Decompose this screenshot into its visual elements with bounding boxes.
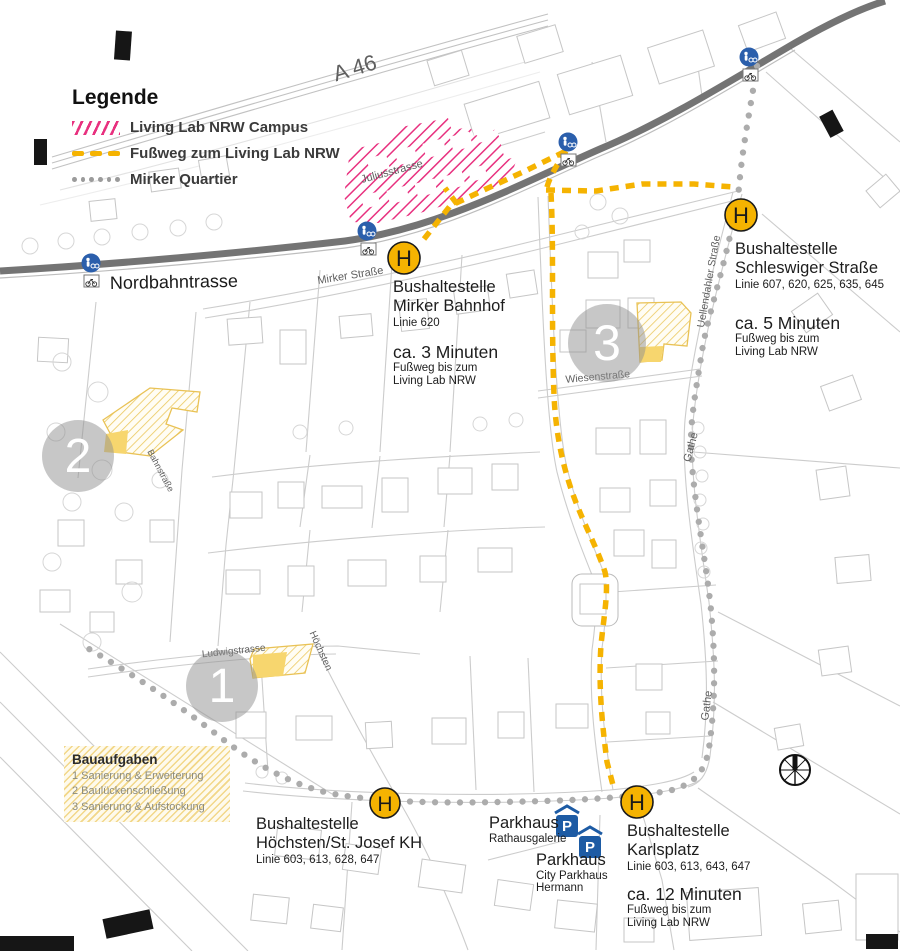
parking-name: Parkhaus bbox=[489, 814, 566, 833]
stop-label-schleswiger: Bushaltestelle Schleswiger Straße Linie … bbox=[735, 240, 900, 360]
legend-item-quartier: Mirker Quartier bbox=[72, 171, 340, 188]
parking-label-city-parkhaus: Parkhaus City Parkhaus Hermann bbox=[536, 851, 608, 894]
parking-label-rathausgalerie: Parkhaus Rathausgalerie bbox=[489, 814, 566, 845]
h-icon: H bbox=[629, 790, 645, 815]
site-3-number: 3 bbox=[593, 315, 621, 371]
stop-lines: Linie 607, 620, 625, 635, 645 bbox=[735, 279, 900, 292]
walk-sub: Living Lab NRW bbox=[393, 375, 563, 388]
legend-item-fussweg: Fußweg zum Living Lab NRW bbox=[72, 145, 340, 162]
stop-name: Karlsplatz bbox=[627, 841, 787, 860]
site-1-number: 1 bbox=[209, 660, 236, 713]
walk-time: ca. 12 Minuten bbox=[627, 884, 787, 904]
legend: Legende Living Lab NRW Campus Fußweg zum… bbox=[72, 86, 340, 197]
bauaufgaben-title: Bauaufgaben bbox=[72, 752, 222, 767]
stop-label-hoechsten: Bushaltestelle Höchsten/St. Josef KH Lin… bbox=[256, 815, 486, 868]
site-2-number: 2 bbox=[65, 430, 92, 483]
legend-item-label: Living Lab NRW Campus bbox=[130, 119, 308, 136]
pedestrian-bike-sign-icon bbox=[358, 222, 377, 241]
pedestrian-bike-sign-icon bbox=[559, 133, 578, 152]
stop-name: Schleswiger Straße bbox=[735, 259, 900, 278]
pink-hatch-swatch-icon bbox=[72, 121, 120, 135]
bus-stop-marker-hoechsten: H bbox=[370, 788, 400, 818]
parking-sub: Rathausgalerie bbox=[489, 833, 566, 845]
walk-time: ca. 3 Minuten bbox=[393, 342, 563, 362]
stop-title: Bushaltestelle bbox=[735, 240, 900, 259]
parking-sub: City Parkhaus bbox=[536, 870, 608, 882]
gray-dots-swatch-icon bbox=[72, 177, 120, 182]
yellow-dash-swatch-icon bbox=[72, 151, 120, 156]
h-icon: H bbox=[396, 246, 412, 271]
legend-item-label: Fußweg zum Living Lab NRW bbox=[130, 145, 340, 162]
bauaufgaben-item: 2 Baulückenschließung bbox=[72, 784, 222, 799]
walk-sub: Fußweg bis zum bbox=[627, 904, 787, 917]
street-label-bahnstrasse: Bahnstraße bbox=[145, 448, 176, 494]
walk-sub: Fußweg bis zum bbox=[735, 333, 900, 346]
bauaufgaben-item: 3 Sanierung & Aufstockung bbox=[72, 800, 222, 815]
path-sign-nordbahntrasse-west bbox=[82, 254, 101, 288]
street-label-gathe-south: Gathe bbox=[699, 690, 715, 721]
street-label-a46: A 46 bbox=[330, 49, 379, 86]
stop-title: Bushaltestelle bbox=[627, 822, 787, 841]
stop-lines: Linie 603, 613, 628, 647 bbox=[256, 854, 486, 867]
parking-sub: Hermann bbox=[536, 882, 608, 894]
walk-sub: Living Lab NRW bbox=[627, 917, 787, 930]
street-label-nordbahntrasse: Nordbahntrasse bbox=[110, 271, 238, 293]
bauaufgaben-box: Bauaufgaben 1 Sanierung & Erweiterung 2 … bbox=[64, 746, 230, 822]
bauaufgaben-item: 1 Sanierung & Erweiterung bbox=[72, 769, 222, 784]
legend-item-label: Mirker Quartier bbox=[130, 171, 238, 188]
parking-name: Parkhaus bbox=[536, 851, 608, 870]
walk-sub: Fußweg bis zum bbox=[393, 362, 563, 375]
h-icon: H bbox=[377, 793, 392, 816]
map-canvas: A 46 Nordbahntrasse Mirker Straße Julius… bbox=[0, 0, 900, 951]
stop-label-karlsplatz: Bushaltestelle Karlsplatz Linie 603, 613… bbox=[627, 822, 787, 931]
walk-time: ca. 5 Minuten bbox=[735, 313, 900, 333]
compass-icon bbox=[780, 755, 810, 785]
stop-name: Höchsten/St. Josef KH bbox=[256, 834, 486, 853]
stop-lines: Linie 620 bbox=[393, 317, 563, 330]
path-sign-campus bbox=[559, 133, 578, 167]
pedestrian-bike-sign-icon bbox=[82, 254, 101, 273]
legend-item-campus: Living Lab NRW Campus bbox=[72, 119, 340, 136]
walk-sub: Living Lab NRW bbox=[735, 346, 900, 359]
bus-stop-marker-mirker-bahnhof: H bbox=[388, 242, 420, 274]
stop-name: Mirker Bahnhof bbox=[393, 297, 563, 316]
bus-stop-marker-karlsplatz: H bbox=[621, 786, 653, 818]
stop-label-mirker-bahnhof: Bushaltestelle Mirker Bahnhof Linie 620 … bbox=[393, 278, 563, 389]
street-label-mirker-strasse: Mirker Straße bbox=[317, 265, 385, 287]
stop-lines: Linie 603, 613, 643, 647 bbox=[627, 861, 787, 874]
bus-stop-marker-schleswiger: H bbox=[725, 199, 757, 231]
stop-title: Bushaltestelle bbox=[256, 815, 486, 834]
pedestrian-bike-sign-icon bbox=[740, 48, 759, 67]
h-icon: H bbox=[733, 203, 749, 228]
legend-title: Legende bbox=[72, 86, 340, 110]
stop-title: Bushaltestelle bbox=[393, 278, 563, 297]
